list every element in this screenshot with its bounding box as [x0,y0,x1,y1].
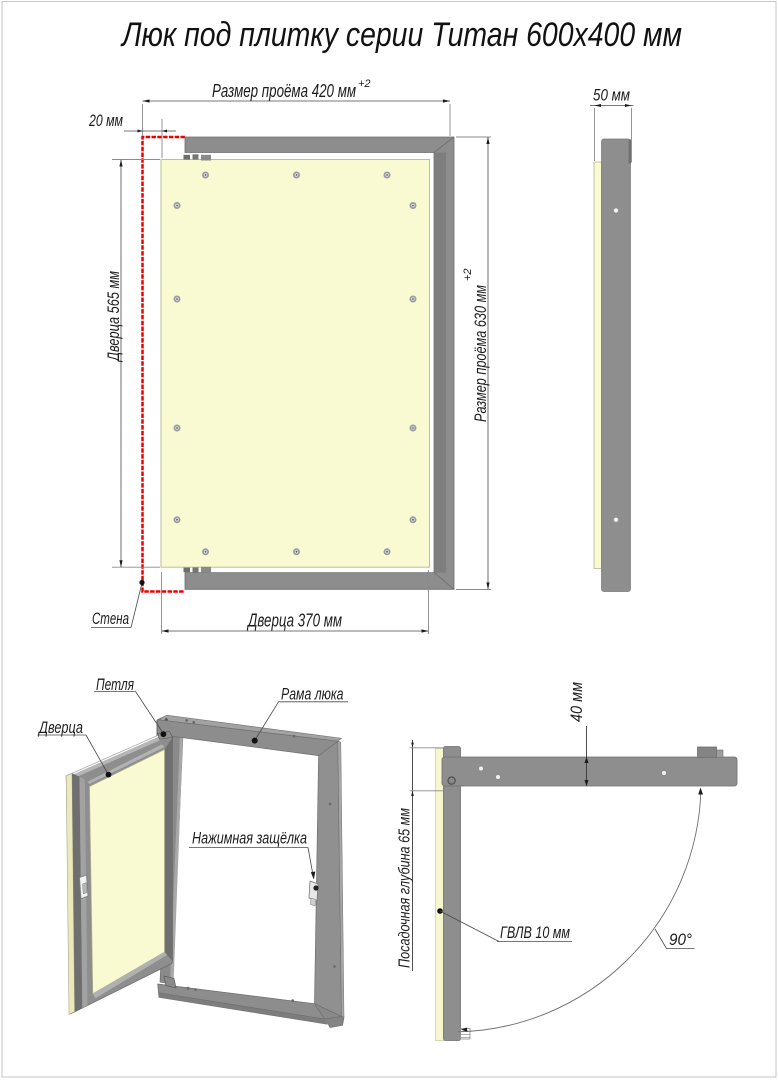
svg-text:Посадочная глубина 65 мм: Посадочная глубина 65 мм [397,808,414,968]
svg-text:+2: +2 [358,78,371,90]
svg-text:50 мм: 50 мм [593,87,630,105]
svg-text:Дверца: Дверца [37,719,83,737]
svg-text:Размер проёма 420 мм: Размер проёма 420 мм [212,81,356,101]
svg-text:ГВЛВ 10 мм: ГВЛВ 10 мм [500,924,570,942]
svg-text:Люк под плитку серии Титан 600: Люк под плитку серии Титан 600х400 мм [120,16,682,54]
svg-text:Стена: Стена [92,610,129,628]
svg-text:Дверца 370 мм: Дверца 370 мм [247,611,342,631]
svg-text:Рама люка: Рама люка [281,686,344,704]
svg-text:Дверца 565 мм: Дверца 565 мм [105,271,123,363]
svg-text:40 мм: 40 мм [568,682,586,722]
svg-text:Нажимная защёлка: Нажимная защёлка [192,830,307,848]
svg-text:90°: 90° [669,931,692,949]
svg-text:20 мм: 20 мм [88,112,123,130]
svg-text:Размер проёма 630 мм: Размер проёма 630 мм [471,285,490,422]
svg-text:+2: +2 [462,268,474,281]
